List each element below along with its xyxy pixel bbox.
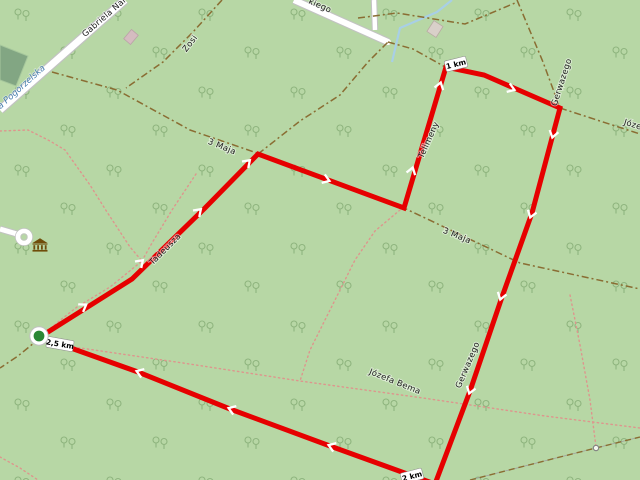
route-start-marker[interactable]: [30, 327, 48, 345]
gate-icon: [593, 445, 598, 450]
tree-pattern: [0, 0, 640, 480]
map-image: Gabriela Nar a Pogorzelska kiego Zosi 3 …: [0, 0, 640, 480]
map-canvas[interactable]: Gabriela Nar a Pogorzelska kiego Zosi 3 …: [0, 0, 640, 480]
road-stub-north: [374, 0, 375, 30]
route-start-marker-dot: [34, 331, 45, 342]
